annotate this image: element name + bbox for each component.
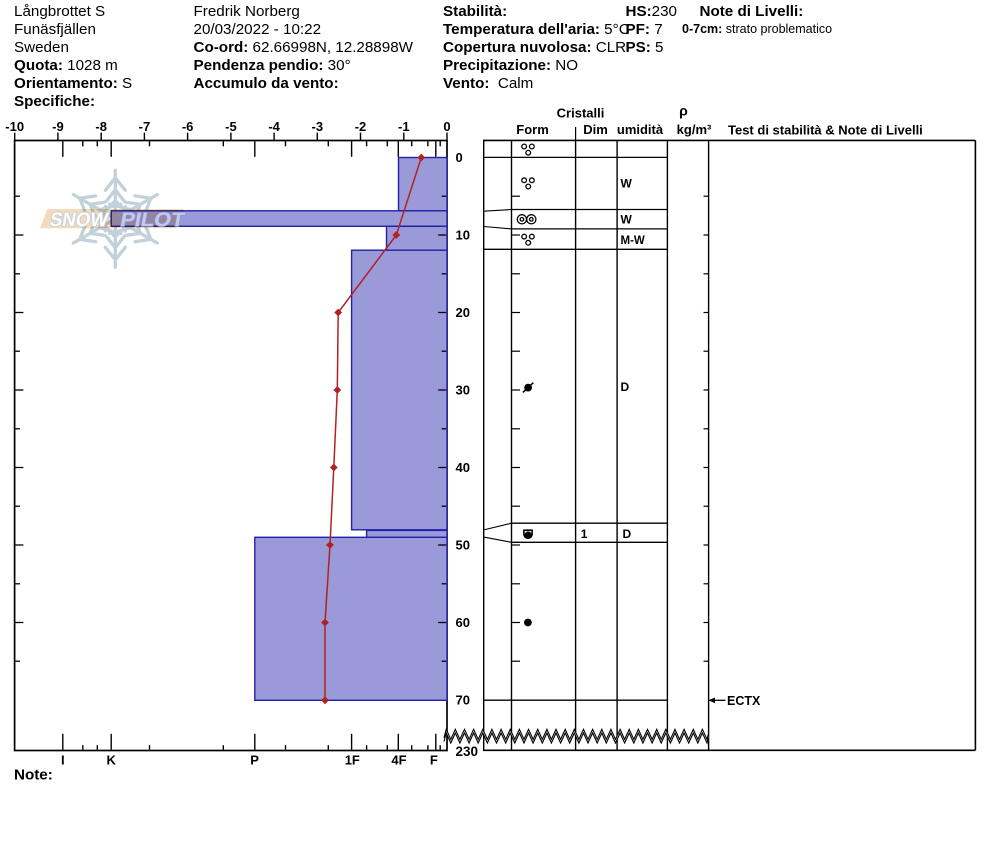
svg-text:Sweden: Sweden	[14, 39, 69, 56]
svg-text:Cristalli: Cristalli	[557, 106, 605, 121]
svg-text:SNOW: SNOW	[48, 209, 110, 231]
svg-text:10: 10	[456, 228, 470, 243]
svg-text:1F: 1F	[345, 752, 360, 767]
svg-text:20/03/2022 - 10:22: 20/03/2022 - 10:22	[194, 21, 322, 38]
svg-text:40: 40	[456, 460, 470, 475]
svg-text:ρ: ρ	[679, 103, 688, 119]
svg-text:Co-ord: 62.66998N, 12.28898W: Co-ord: 62.66998N, 12.28898W	[194, 39, 414, 56]
svg-text:Långbrottet S: Långbrottet S	[14, 3, 105, 20]
svg-text:Precipitazione: NO: Precipitazione: NO	[443, 57, 578, 74]
svg-text:Copertura nuvolosa: CLR: Copertura nuvolosa: CLR	[443, 39, 626, 56]
svg-text:Accumulo da vento:: Accumulo da vento:	[194, 75, 339, 92]
svg-text:Pendenza pendio: 30°: Pendenza pendio: 30°	[194, 57, 351, 74]
svg-text:Temperatura dell'aria: 5°C: Temperatura dell'aria: 5°C	[443, 21, 630, 38]
svg-text:HS:230: HS:230	[626, 3, 678, 20]
svg-text:PILOT: PILOT	[119, 209, 187, 231]
svg-text:60: 60	[456, 615, 470, 630]
svg-text:-2: -2	[355, 119, 367, 134]
svg-text:-3: -3	[312, 119, 324, 134]
svg-text:ECTX: ECTX	[727, 694, 761, 708]
svg-text:D: D	[623, 527, 632, 541]
svg-text:Stabilità:: Stabilità:	[443, 3, 507, 20]
svg-text:70: 70	[456, 693, 470, 708]
svg-text:-8: -8	[95, 119, 107, 134]
svg-text:-7: -7	[139, 119, 151, 134]
svg-text:-9: -9	[52, 119, 64, 134]
svg-text:Test di stabilità & Note di Li: Test di stabilità & Note di Livelli	[728, 123, 923, 138]
svg-text:PS: 5: PS: 5	[626, 39, 664, 56]
svg-text:Dim: Dim	[583, 122, 608, 137]
svg-text:-10: -10	[5, 119, 24, 134]
svg-text:Vento: Calm: Vento: Calm	[443, 75, 533, 92]
svg-text:Quota: 1028 m: Quota: 1028 m	[14, 57, 118, 74]
svg-text:50: 50	[456, 538, 470, 553]
svg-text:I: I	[61, 752, 65, 767]
svg-text:M-W: M-W	[621, 235, 645, 247]
svg-text:0: 0	[443, 119, 450, 134]
svg-text:0-7cm: strato problematico: 0-7cm: strato problematico	[682, 22, 832, 36]
svg-text:W: W	[621, 177, 633, 191]
svg-text:1: 1	[581, 527, 588, 541]
svg-text:Form: Form	[516, 122, 549, 137]
svg-text:Funäsfjällen: Funäsfjällen	[14, 21, 96, 38]
svg-text:F: F	[430, 752, 438, 767]
svg-text:20: 20	[456, 305, 470, 320]
svg-text:PF: 7: PF: 7	[626, 21, 663, 38]
svg-text:D: D	[621, 380, 630, 394]
svg-text:Note di Livelli:: Note di Livelli:	[700, 3, 804, 20]
svg-text:umidità: umidità	[617, 122, 664, 137]
svg-text:-1: -1	[398, 119, 410, 134]
svg-text:Fredrik Norberg: Fredrik Norberg	[194, 3, 300, 20]
svg-text:Specifiche:: Specifiche:	[14, 93, 95, 110]
svg-text:P: P	[250, 752, 259, 767]
svg-text:K: K	[107, 752, 117, 767]
svg-text:kg/m³: kg/m³	[677, 122, 712, 137]
svg-text:230: 230	[456, 744, 479, 759]
svg-text:-5: -5	[225, 119, 237, 134]
svg-text:-6: -6	[182, 119, 194, 134]
svg-text:Note:: Note:	[14, 767, 53, 784]
svg-text:0: 0	[456, 150, 463, 165]
svg-text:4F: 4F	[391, 752, 406, 767]
svg-text:30: 30	[456, 383, 470, 398]
svg-text:Orientamento: S: Orientamento: S	[14, 75, 132, 92]
svg-text:-4: -4	[268, 119, 280, 134]
svg-text:W: W	[621, 213, 633, 227]
